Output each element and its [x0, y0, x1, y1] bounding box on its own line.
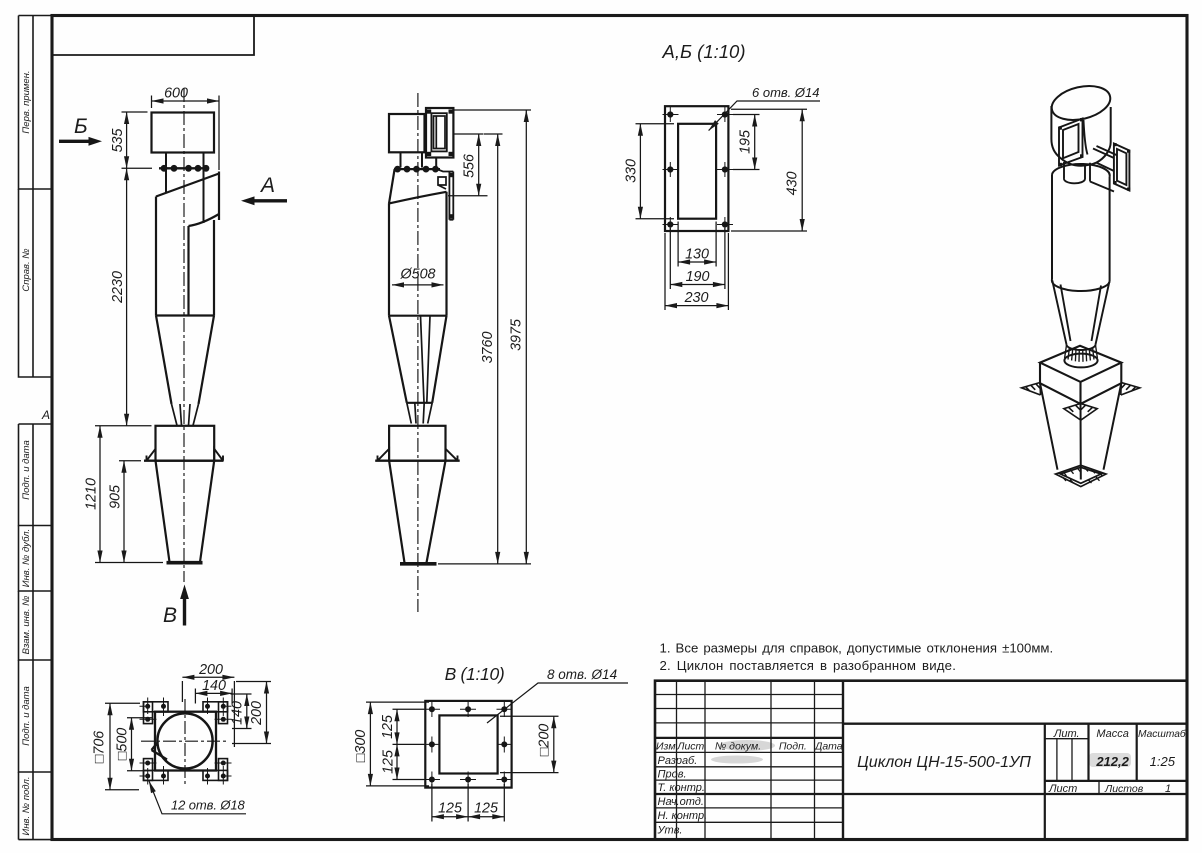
svg-text:В (1:10): В (1:10) [445, 664, 505, 684]
svg-text:Инв. № дубл.: Инв. № дубл. [21, 529, 32, 587]
svg-text:200: 200 [249, 701, 265, 726]
svg-text:3760: 3760 [480, 332, 496, 364]
svg-text:Пров.: Пров. [658, 768, 687, 780]
svg-text:330: 330 [624, 159, 640, 183]
svg-text:905: 905 [108, 485, 124, 509]
svg-text:Нач.отд.: Нач.отд. [658, 796, 704, 808]
svg-text:Изм: Изм [656, 741, 675, 753]
svg-text:□500: □500 [115, 728, 131, 761]
svg-text:2. Циклон поставляется в разоб: 2. Циклон поставляется в разобранном вид… [660, 658, 957, 673]
svg-text:125: 125 [380, 715, 396, 739]
svg-text:В: В [163, 604, 177, 627]
svg-text:Лит.: Лит. [1053, 728, 1080, 740]
svg-text:212,2: 212,2 [1095, 754, 1129, 769]
svg-text:535: 535 [110, 129, 126, 153]
svg-text:195: 195 [738, 130, 754, 154]
svg-text:Разраб.: Разраб. [658, 755, 698, 767]
svg-text:Подп. и дата: Подп. и дата [21, 440, 32, 499]
svg-text:А: А [41, 408, 50, 422]
svg-text:Взам. инв. №: Взам. инв. № [21, 596, 32, 655]
svg-text:Листов: Листов [1104, 783, 1144, 795]
svg-text:Подп.: Подп. [779, 741, 807, 753]
svg-text:140: 140 [202, 678, 226, 694]
svg-text:Подп. и дата: Подп. и дата [21, 686, 32, 745]
svg-text:□706: □706 [92, 731, 108, 764]
svg-text:Масштаб: Масштаб [1138, 728, 1187, 740]
svg-text:Лист: Лист [676, 741, 704, 753]
svg-text:8 отв. Ø14: 8 отв. Ø14 [547, 667, 617, 682]
svg-text:600: 600 [164, 86, 188, 102]
svg-text:140: 140 [230, 701, 246, 725]
svg-text:Инв. № подл.: Инв. № подл. [21, 777, 32, 836]
svg-text:А: А [259, 174, 275, 197]
svg-text:556: 556 [462, 154, 478, 178]
svg-text:1. Все размеры для справок, до: 1. Все размеры для справок, допустимые о… [660, 641, 1054, 656]
svg-text:125: 125 [474, 801, 498, 817]
svg-text:Дата: Дата [814, 741, 843, 753]
svg-text:Ø508: Ø508 [400, 267, 436, 283]
svg-text:1:25: 1:25 [1150, 754, 1176, 769]
svg-text:Т. контр.: Т. контр. [658, 782, 705, 794]
svg-text:Утв.: Утв. [657, 824, 683, 836]
svg-text:1210: 1210 [84, 478, 100, 510]
svg-text:125: 125 [438, 801, 462, 817]
svg-text:Справ. №: Справ. № [21, 248, 32, 291]
svg-text:Перв. примен.: Перв. примен. [21, 70, 32, 133]
svg-text:Масса: Масса [1096, 728, 1129, 740]
svg-text:2230: 2230 [110, 271, 126, 304]
svg-text:125: 125 [381, 750, 397, 774]
svg-text:Б: Б [74, 115, 88, 138]
svg-text:3975: 3975 [509, 319, 525, 351]
svg-text:430: 430 [785, 172, 801, 196]
svg-text:Циклон ЦН-15-500-1УП: Циклон ЦН-15-500-1УП [857, 754, 1031, 771]
svg-text:□300: □300 [353, 730, 369, 763]
svg-text:А,Б (1:10): А,Б (1:10) [662, 41, 746, 62]
svg-text:Н. контр.: Н. контр. [658, 810, 708, 822]
svg-text:6 отв. Ø14: 6 отв. Ø14 [752, 85, 819, 100]
svg-text:№ докум.: № докум. [715, 741, 761, 753]
svg-text:200: 200 [198, 662, 223, 678]
svg-text:12 отв. Ø18: 12 отв. Ø18 [171, 798, 245, 813]
svg-text:1: 1 [1165, 783, 1171, 795]
svg-text:Лист: Лист [1048, 783, 1077, 795]
svg-text:230: 230 [684, 290, 709, 306]
svg-text:190: 190 [686, 269, 710, 285]
svg-text:130: 130 [685, 247, 709, 263]
svg-text:□200: □200 [537, 724, 553, 757]
